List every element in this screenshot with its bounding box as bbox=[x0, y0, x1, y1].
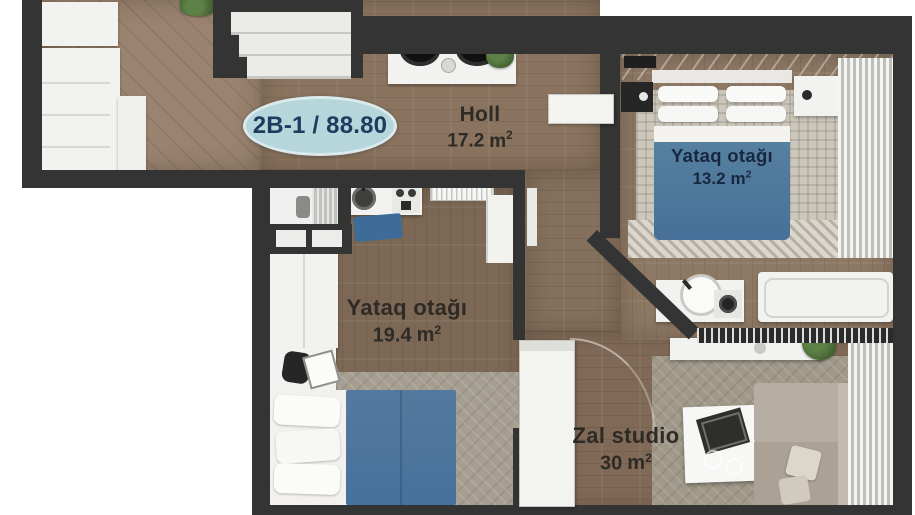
room-label-holl: Holl 17.2m2 bbox=[420, 102, 540, 153]
bathtub bbox=[758, 272, 893, 322]
pillow bbox=[726, 86, 786, 102]
speaker-icon bbox=[754, 342, 766, 354]
room-area: 19.4m2 bbox=[322, 323, 492, 349]
washer-door-icon bbox=[719, 295, 737, 313]
room-area: 17.2m2 bbox=[420, 129, 540, 153]
cup-icon bbox=[704, 450, 723, 469]
area-value: 13.2 bbox=[692, 169, 725, 188]
room-name: Yataq otağı bbox=[322, 294, 492, 322]
room-area: 30m2 bbox=[556, 451, 696, 477]
room-name: Holl bbox=[420, 102, 540, 128]
washing-machine bbox=[714, 290, 742, 318]
cup-icon bbox=[726, 458, 743, 475]
area-sup: 2 bbox=[645, 451, 652, 465]
kitchen-mat bbox=[353, 213, 403, 242]
dish-icon bbox=[441, 58, 456, 73]
area-value: 30 bbox=[600, 452, 622, 474]
bedroom-small-door-leaf bbox=[548, 94, 614, 124]
entry-step bbox=[239, 34, 351, 57]
toilet-icon bbox=[296, 196, 310, 218]
area-unit: m bbox=[627, 452, 645, 474]
wall-inset-panel bbox=[276, 230, 306, 247]
drawer-line bbox=[38, 146, 110, 148]
room-label-bedroom-small: Yataq otağı 13.2m2 bbox=[650, 144, 794, 189]
nightstand bbox=[794, 76, 840, 116]
door-cap bbox=[520, 341, 574, 351]
pillow bbox=[726, 106, 786, 122]
headboard bbox=[652, 70, 792, 83]
plant-icon bbox=[180, 0, 216, 16]
bedroom-large-right-wall bbox=[513, 188, 525, 340]
area-unit: m bbox=[489, 131, 506, 152]
pillow bbox=[275, 428, 341, 464]
area-value: 19.4 bbox=[373, 324, 412, 346]
entrance-cabinet bbox=[30, 2, 118, 46]
outer-wall-left bbox=[22, 0, 42, 188]
blanket bbox=[346, 390, 456, 505]
room-area: 13.2m2 bbox=[650, 168, 794, 189]
bedroom-small-left-wall bbox=[600, 54, 620, 238]
nightstand bbox=[621, 82, 653, 112]
sink-icon bbox=[352, 186, 376, 210]
curtains bbox=[838, 58, 893, 258]
entry-wall-block bbox=[213, 0, 363, 78]
towel-radiator bbox=[312, 188, 338, 226]
faucet-icon bbox=[682, 279, 692, 290]
wall-inset-panel bbox=[312, 230, 342, 247]
bed-large bbox=[270, 390, 456, 505]
tub-basin bbox=[764, 278, 889, 318]
area-unit: m bbox=[731, 169, 746, 188]
wc-wall bbox=[270, 224, 352, 254]
curtains bbox=[848, 334, 893, 505]
drawer-line bbox=[38, 114, 110, 116]
floor-plan: 2B-1 / 88.80 Holl 17.2m2 Yataq otağı 13.… bbox=[0, 0, 915, 515]
lamp-icon bbox=[639, 92, 648, 101]
outer-wall-right bbox=[893, 16, 912, 512]
slatted-partition bbox=[697, 328, 902, 343]
entrance-dresser-extension bbox=[118, 96, 146, 170]
lamp-icon bbox=[802, 90, 812, 100]
wall-tv bbox=[624, 56, 656, 68]
fridge bbox=[486, 195, 515, 263]
pillow bbox=[658, 106, 718, 122]
outer-wall-top bbox=[352, 16, 912, 54]
drawer-line bbox=[38, 82, 110, 84]
outer-wall-bottom bbox=[252, 505, 912, 515]
pillow bbox=[273, 394, 340, 427]
wc-side-wall bbox=[338, 188, 351, 226]
room-name: Yataq otağı bbox=[650, 144, 794, 167]
door-trim bbox=[527, 188, 537, 246]
area-value: 17.2 bbox=[447, 131, 484, 152]
entry-step bbox=[231, 12, 351, 35]
wardrobe-divider bbox=[303, 252, 305, 348]
entry-step bbox=[247, 56, 351, 79]
area-unit: m bbox=[417, 324, 435, 346]
unit-badge: 2B-1 / 88.80 bbox=[243, 96, 397, 156]
pillow bbox=[658, 86, 718, 102]
stove-icon bbox=[392, 185, 420, 213]
blanket-seam bbox=[400, 390, 402, 505]
sofa-pillow bbox=[778, 475, 811, 505]
burner-icon bbox=[396, 189, 404, 197]
room-label-living: Zal studio 30m2 bbox=[556, 422, 696, 476]
room-label-bedroom-large: Yataq otağı 19.4m2 bbox=[322, 294, 492, 348]
area-sup: 2 bbox=[746, 168, 752, 180]
oven-icon bbox=[401, 201, 411, 210]
area-sup: 2 bbox=[506, 129, 513, 142]
burner-icon bbox=[408, 189, 416, 197]
pillow bbox=[273, 463, 340, 495]
entrance-dresser bbox=[30, 48, 120, 170]
outer-wall-lower-left bbox=[252, 170, 270, 515]
hall-bottom-wall bbox=[22, 170, 525, 188]
room-name: Zal studio bbox=[556, 422, 696, 450]
area-sup: 2 bbox=[434, 323, 441, 337]
